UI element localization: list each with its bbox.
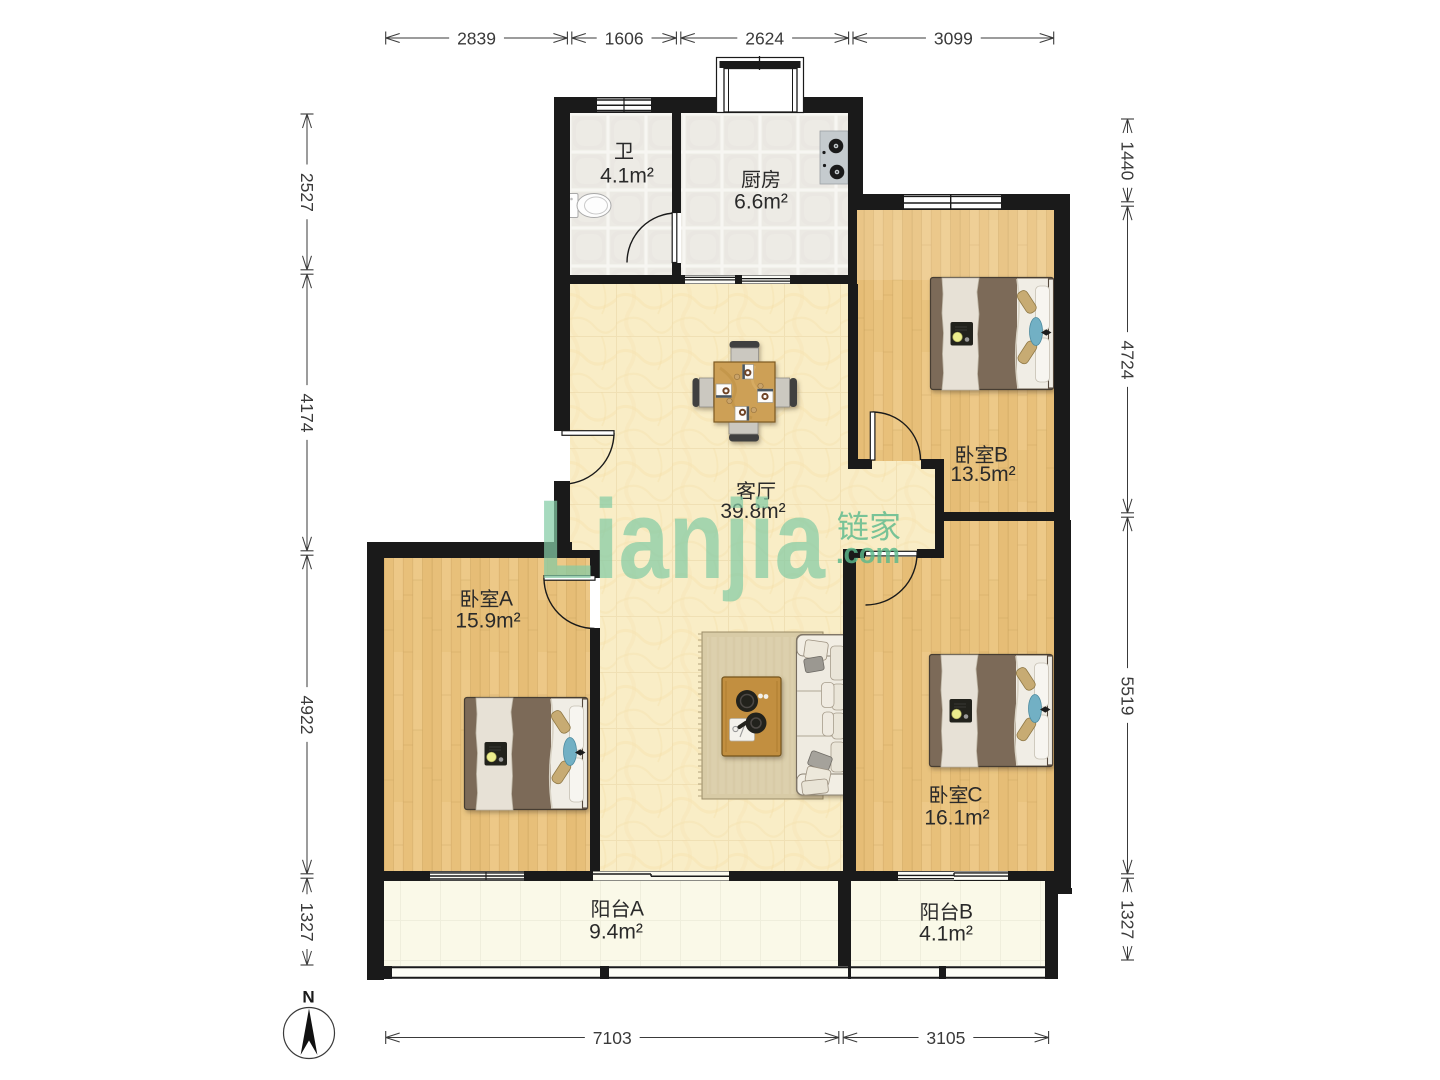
svg-text:5519: 5519 xyxy=(1118,677,1138,716)
svg-text:13.5m²: 13.5m² xyxy=(950,463,1015,486)
svg-text:4.1m²: 4.1m² xyxy=(919,923,973,946)
svg-text:3105: 3105 xyxy=(926,1028,965,1048)
svg-text:9.4m²: 9.4m² xyxy=(589,921,643,944)
svg-text:1327: 1327 xyxy=(297,903,317,942)
svg-text:B: B xyxy=(959,901,973,924)
svg-text:15.9m²: 15.9m² xyxy=(455,610,520,633)
svg-text:4.1m²: 4.1m² xyxy=(600,165,654,188)
svg-text:2839: 2839 xyxy=(457,29,496,49)
svg-text:1606: 1606 xyxy=(605,29,644,49)
svg-text:C: C xyxy=(967,784,982,807)
svg-text:Lianjia: Lianjia xyxy=(538,477,826,602)
svg-text:A: A xyxy=(499,588,513,611)
svg-text:3099: 3099 xyxy=(934,29,973,49)
svg-text:N: N xyxy=(302,988,314,1007)
svg-text:6.6m²: 6.6m² xyxy=(734,191,788,214)
svg-text:1440: 1440 xyxy=(1118,141,1138,180)
svg-text:2624: 2624 xyxy=(745,29,784,49)
svg-text:16.1m²: 16.1m² xyxy=(924,807,989,830)
svg-text:4922: 4922 xyxy=(297,696,317,735)
svg-text:.com: .com xyxy=(836,538,900,570)
svg-text:4174: 4174 xyxy=(297,394,317,433)
svg-text:4724: 4724 xyxy=(1118,341,1138,380)
svg-text:1327: 1327 xyxy=(1118,900,1138,939)
svg-text:7103: 7103 xyxy=(593,1028,632,1048)
svg-text:A: A xyxy=(630,898,644,921)
svg-text:2527: 2527 xyxy=(297,173,317,212)
